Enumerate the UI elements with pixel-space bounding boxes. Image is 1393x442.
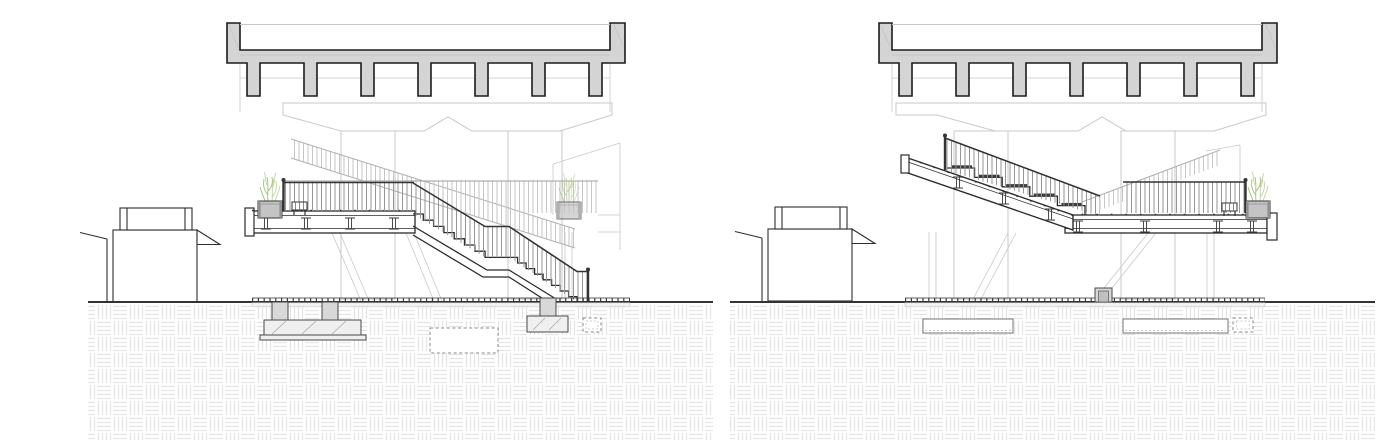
left-elevation-panel: [80, 23, 713, 440]
left-ground-hatch: [88, 303, 713, 440]
right-kiosk: [735, 207, 875, 301]
right-ground: [730, 298, 1375, 440]
left-stair-pedestal: [540, 298, 556, 316]
right-ramp-end-plate: [901, 155, 909, 173]
right-platform-deck: [1065, 213, 1277, 240]
left-bridge-deck-section: [227, 23, 625, 96]
right-stepped-ramp: [901, 134, 1100, 231]
left-planter: [258, 172, 282, 218]
drawing-canvas: [0, 0, 1393, 442]
right-bench: [1222, 203, 1237, 216]
right-pier-cap: [896, 103, 1266, 131]
left-kiosk: [80, 208, 220, 302]
right-ground-hatch: [730, 303, 1375, 440]
left-underground-dashed-box: [430, 328, 498, 353]
right-bridge-deck-section: [879, 23, 1277, 96]
left-ground: [88, 298, 713, 440]
right-underground-footing-2: [1123, 319, 1228, 333]
right-planter: [1246, 172, 1270, 218]
right-elevation-panel: [730, 23, 1375, 440]
left-pier-cap: [283, 103, 612, 131]
elevation-drawing: [0, 0, 1393, 442]
right-underground-footing-1: [923, 319, 1013, 333]
left-platform-end-cap: [245, 208, 254, 236]
